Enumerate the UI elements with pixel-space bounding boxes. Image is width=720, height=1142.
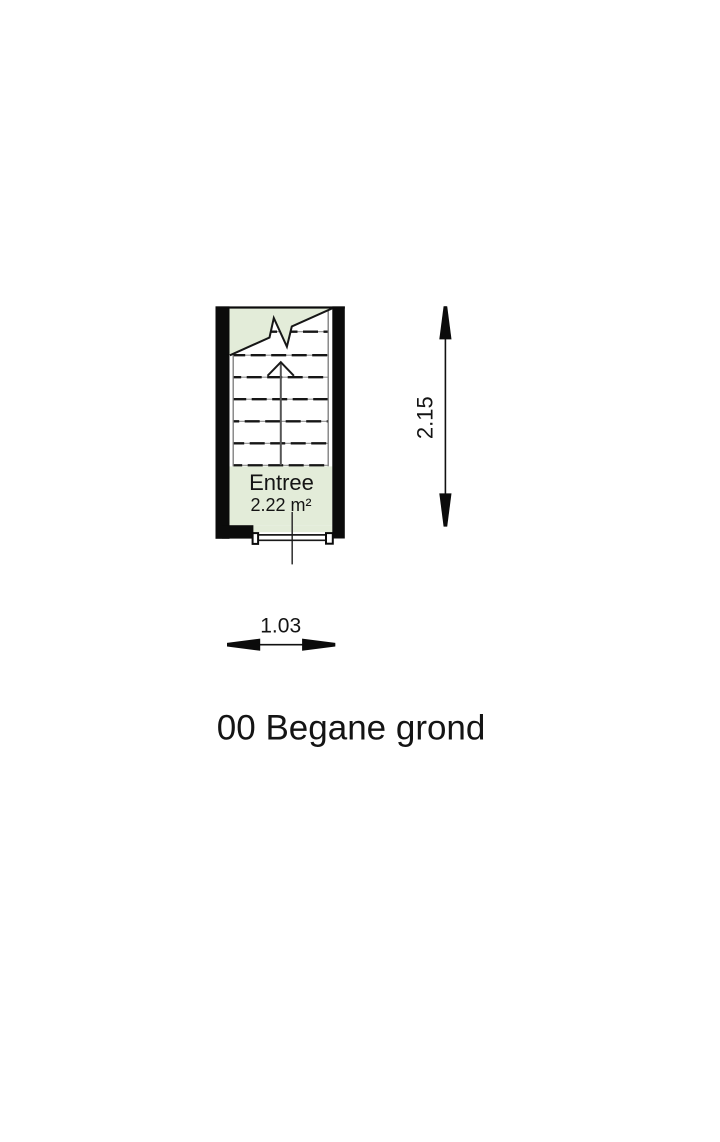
svg-text:2.15: 2.15	[412, 396, 437, 439]
svg-text:1.03: 1.03	[260, 615, 301, 638]
svg-text:00 Begane grond: 00 Begane grond	[217, 709, 486, 748]
svg-text:2.22 m²: 2.22 m²	[250, 495, 311, 515]
svg-text:Entree: Entree	[249, 470, 314, 495]
